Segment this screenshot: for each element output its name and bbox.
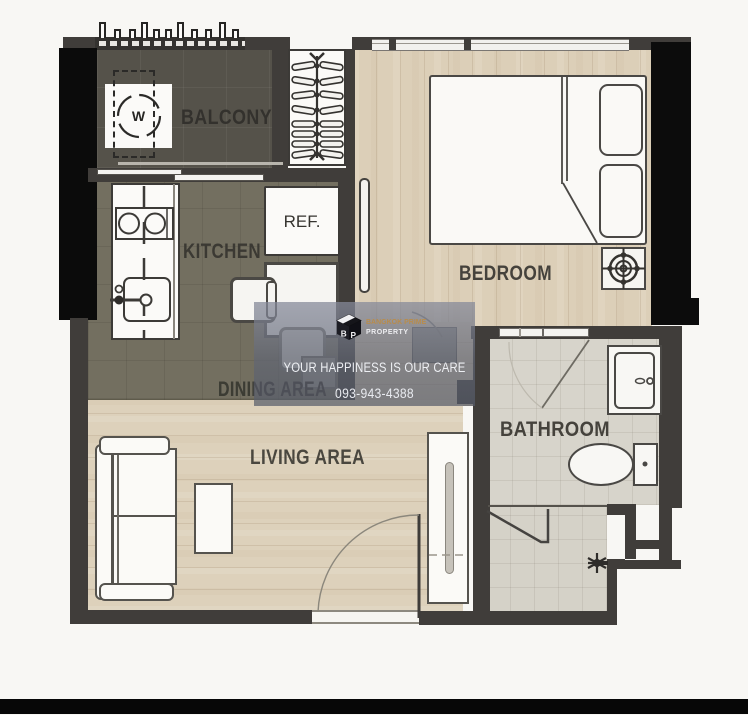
svg-text:P: P <box>351 331 357 340</box>
svg-text:B: B <box>341 329 347 338</box>
